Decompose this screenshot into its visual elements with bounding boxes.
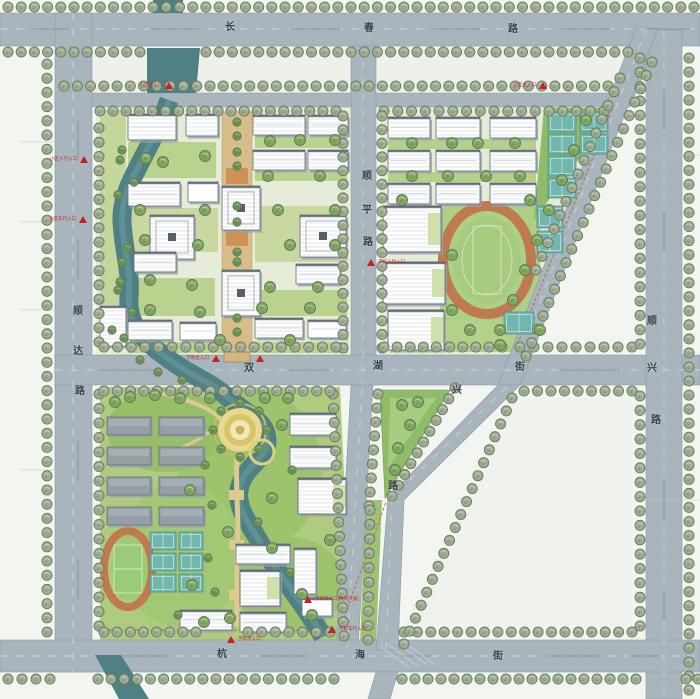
- plan-graphics: [0, 0, 700, 699]
- entrance-arrow-icon: [328, 626, 336, 633]
- entrance-label: 学校人行入口: [378, 260, 405, 265]
- road-char: 兴: [452, 386, 462, 396]
- road-char: 顺: [362, 172, 372, 182]
- road-char: 杭: [217, 650, 227, 660]
- entrance-label: 学校车行入口: [339, 627, 366, 632]
- road-char: 顺: [647, 317, 657, 327]
- entrance-arrow-icon: [227, 636, 235, 643]
- site-plan: 长 春 路 顺 达 路 顺 平 路 双 湖 街 顺 兴 路 兴 路 杭 海 街 …: [0, 0, 700, 699]
- road-char: 路: [388, 482, 398, 492]
- road-char: 路: [508, 25, 518, 35]
- road-char: 海: [355, 651, 365, 661]
- entrance-label: 学校次入口(晚间开放): [315, 597, 359, 602]
- road-char: 路: [651, 416, 661, 426]
- road-char: 路: [363, 238, 373, 248]
- entrance-arrow-icon: [80, 156, 88, 163]
- entrance-label: 学校主入口: [187, 356, 210, 361]
- entrance-label: 学校次入口: [238, 637, 261, 642]
- road-char: 路: [75, 387, 85, 397]
- entrance-arrow-icon: [79, 216, 87, 223]
- entrance-label: 小区主入口: [140, 83, 163, 88]
- road-char: 兴: [647, 364, 657, 374]
- road-char: 春: [364, 24, 374, 34]
- entrance-arrow-icon: [165, 82, 173, 89]
- entrance-arrow-icon: [212, 355, 220, 362]
- entrance-label: 小区人行入口: [50, 157, 77, 162]
- entrance-arrow-icon: [539, 82, 547, 89]
- entrance-arrow-icon: [304, 596, 312, 603]
- road-char: 双: [244, 364, 254, 374]
- entrance-label: 小区主入口: [514, 83, 537, 88]
- road-char: 街: [493, 652, 503, 662]
- entrance-label: 小区车行入口: [49, 217, 76, 222]
- road-char: 平: [362, 206, 372, 216]
- road-char: 街: [515, 363, 525, 373]
- road-char: 顺: [73, 307, 83, 317]
- road-char: 湖: [373, 362, 383, 372]
- entrance-arrow-icon: [367, 259, 375, 266]
- road-char: 达: [73, 347, 83, 357]
- road-char: 长: [225, 23, 235, 33]
- entrance-arrow-icon: [256, 355, 264, 362]
